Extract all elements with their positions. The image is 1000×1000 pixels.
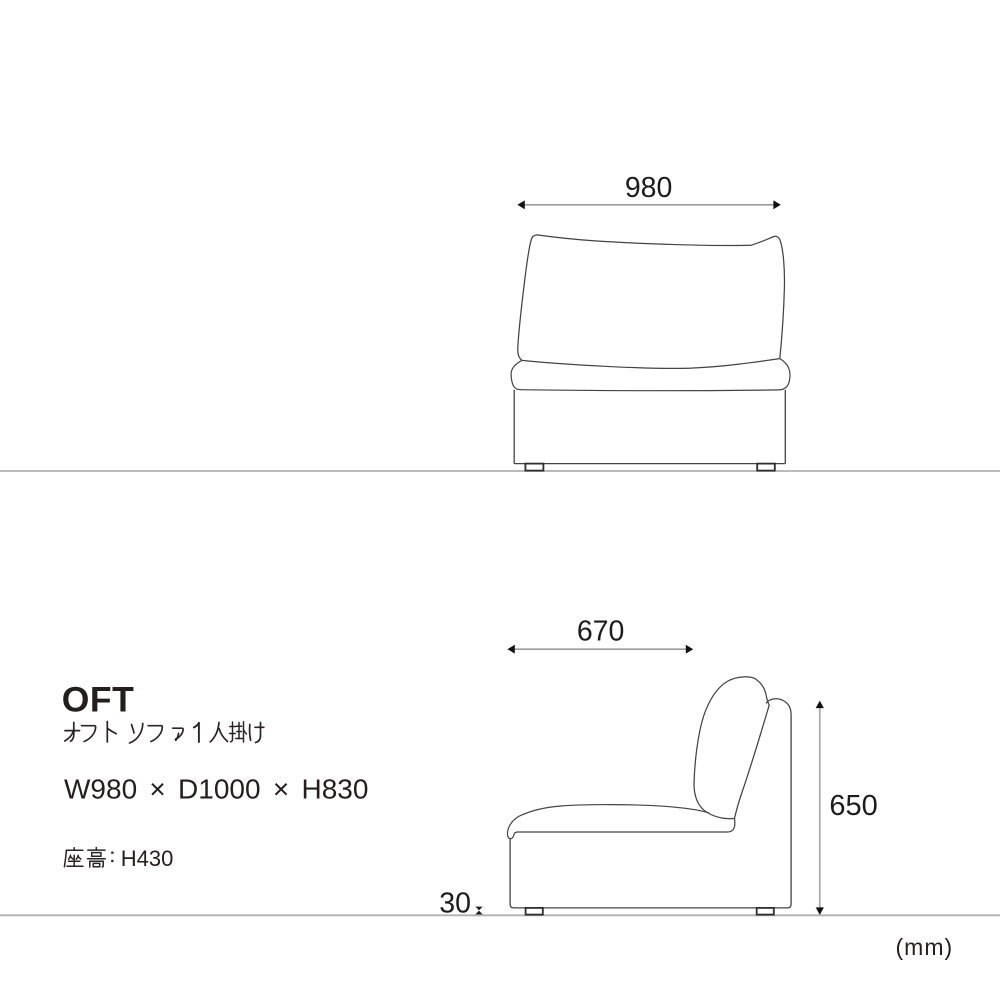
- svg-text:670: 670: [577, 616, 625, 648]
- svg-text:OFT: OFT: [62, 680, 134, 720]
- svg-text:(mm): (mm): [896, 934, 954, 960]
- svg-text:W980 × D1000 × H830: W980 × D1000 × H830: [64, 774, 368, 805]
- svg-text:650: 650: [829, 790, 877, 822]
- svg-text:H430: H430: [121, 846, 174, 871]
- svg-text:30: 30: [439, 888, 471, 920]
- svg-text:980: 980: [625, 172, 673, 204]
